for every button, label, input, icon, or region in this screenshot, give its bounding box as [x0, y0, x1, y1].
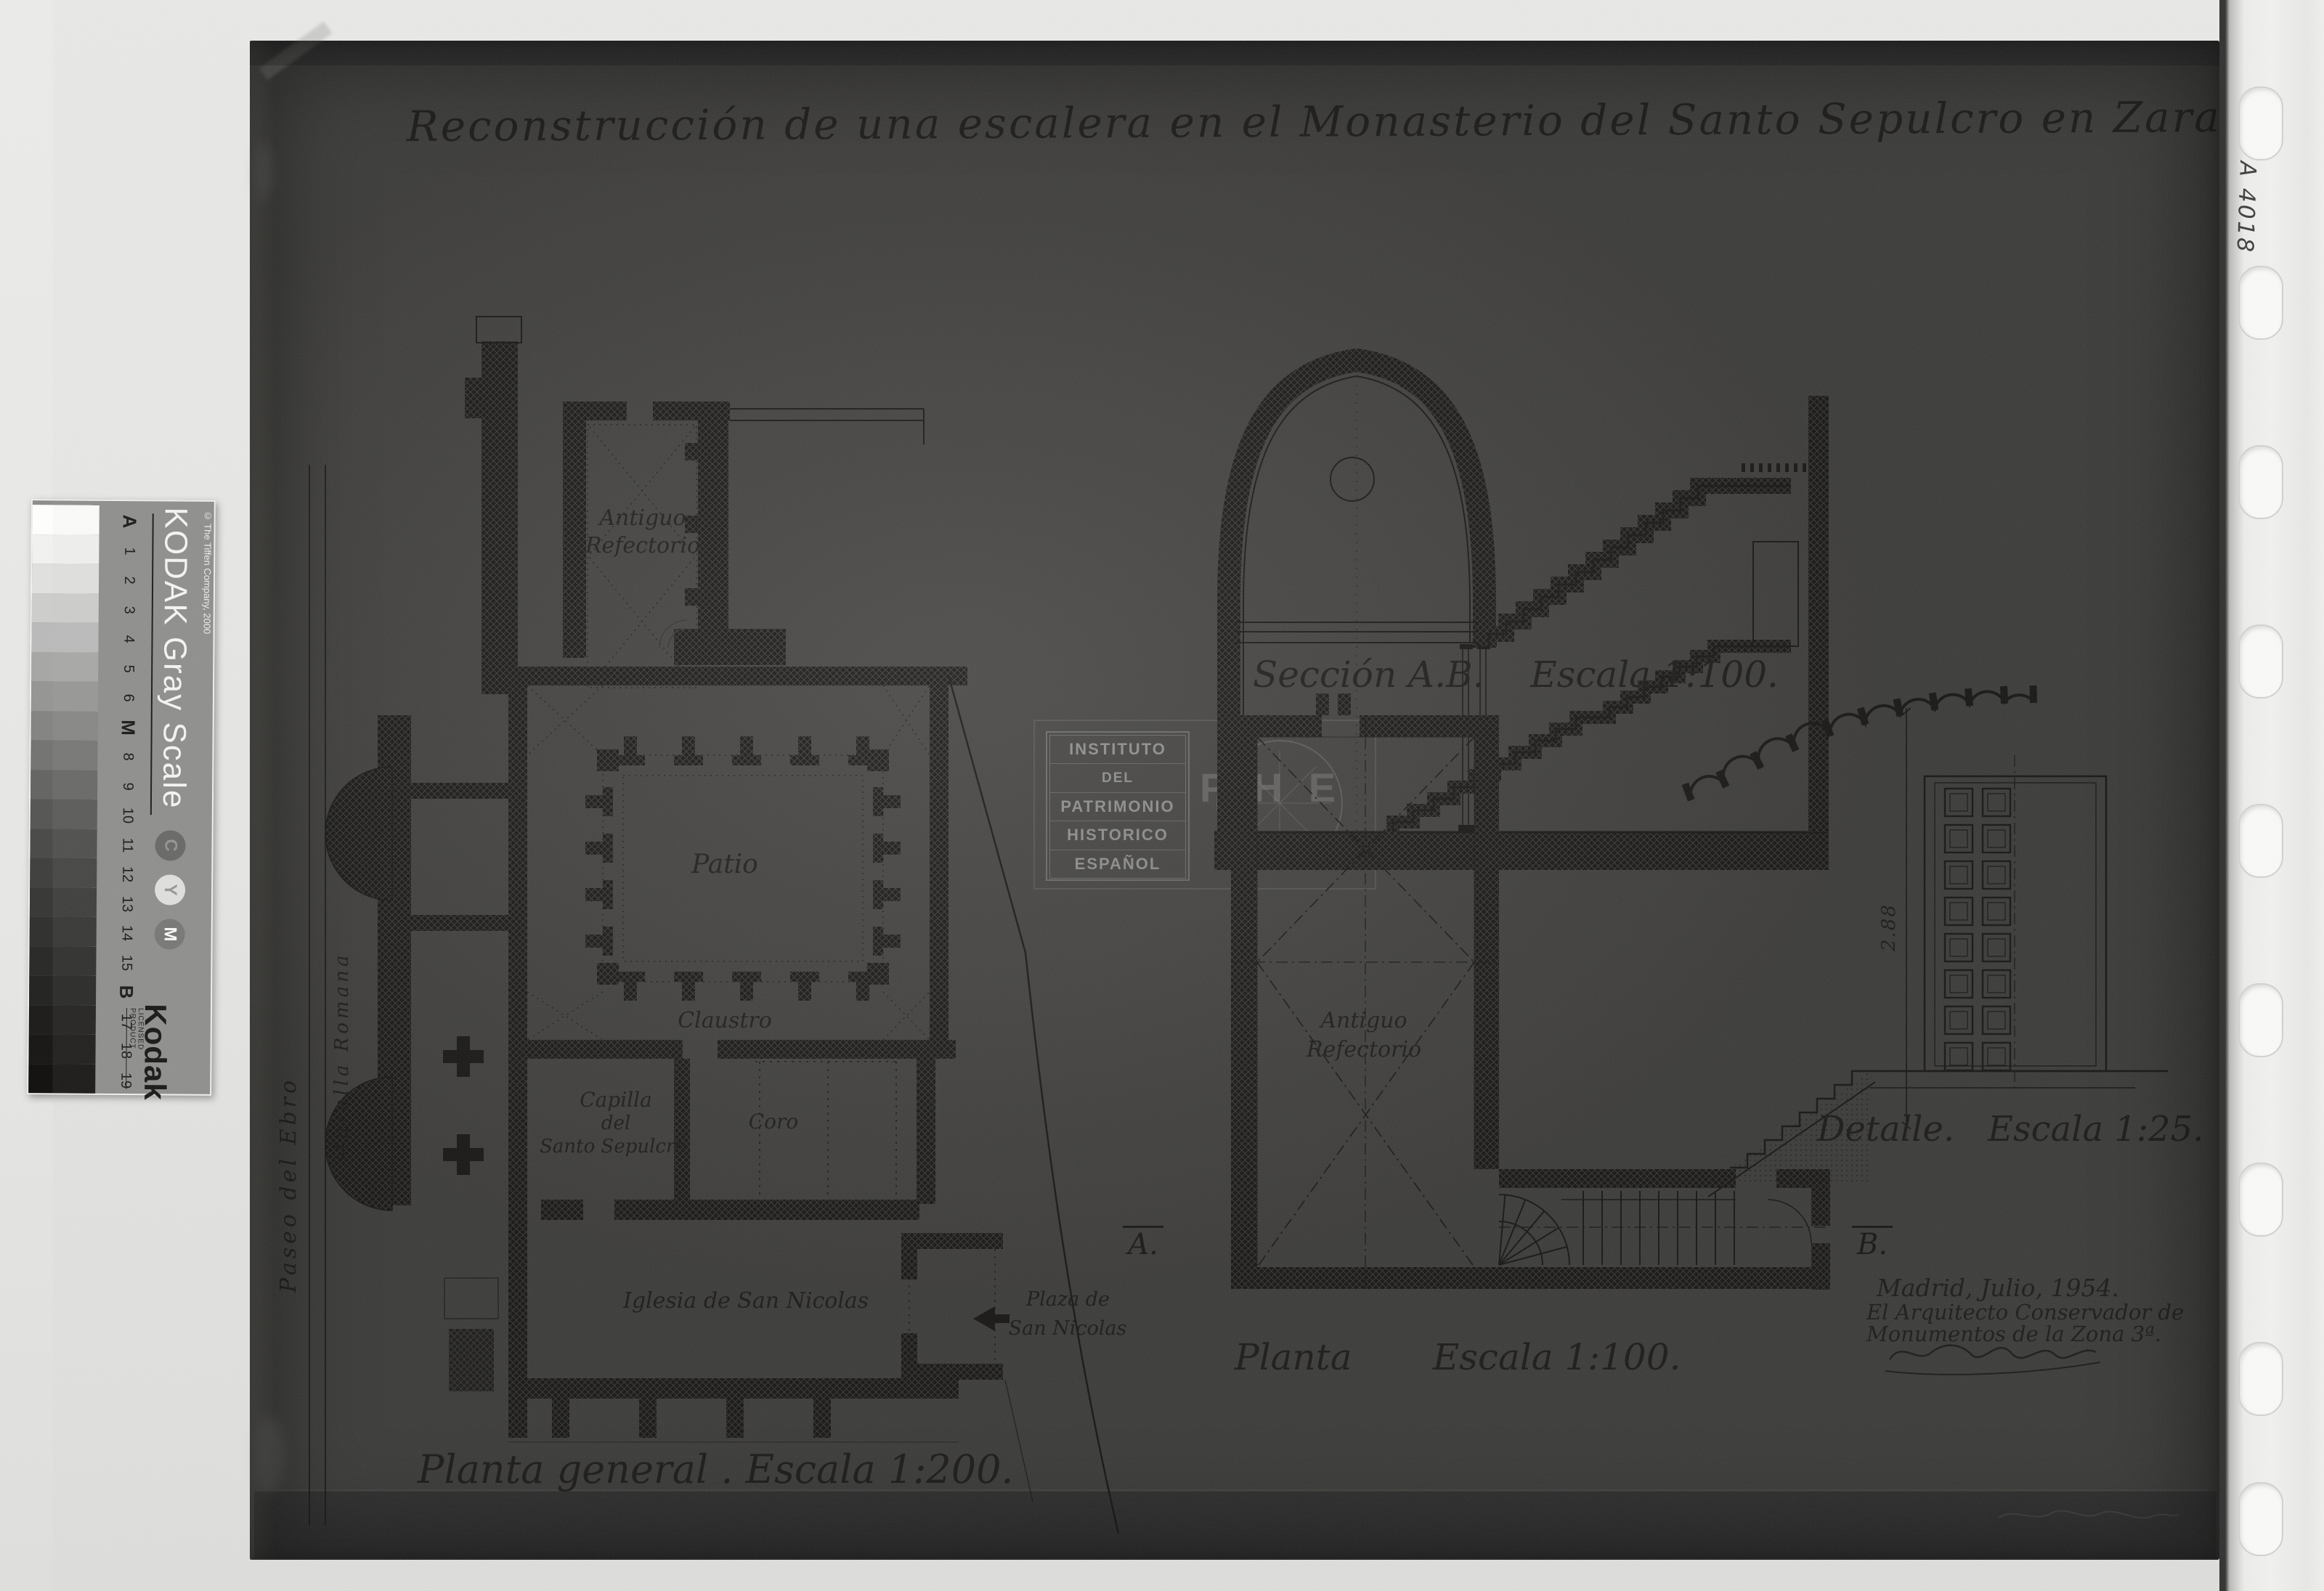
- gray-patch: [30, 829, 97, 858]
- gray-patch: [29, 946, 96, 976]
- gray-patch: [31, 799, 97, 829]
- sleeve-punch-hole: [2238, 804, 2283, 878]
- kodak-gray-scale-strip: A123456M89101112131415B171819 KODAK Gray…: [27, 499, 216, 1096]
- gray-patch: [30, 858, 97, 887]
- gray-step-label: 4: [114, 623, 143, 655]
- gray-step-label: B: [112, 976, 141, 1008]
- gray-patch: [32, 563, 99, 593]
- gray-step-label: A: [115, 505, 144, 537]
- gray-patch: [31, 681, 98, 711]
- gray-step-label: 15: [112, 946, 141, 978]
- gray-step-label: 1: [115, 534, 144, 566]
- magenta-patch-circle: M: [155, 919, 185, 949]
- gray-patch: [31, 652, 98, 682]
- gray-patch: [28, 1034, 95, 1064]
- gray-step-label: 5: [114, 652, 143, 684]
- gray-patch: [30, 887, 97, 917]
- gray-step-label: 8: [113, 741, 142, 773]
- gray-patch: [31, 740, 97, 770]
- gray-step-label: 3: [115, 593, 144, 625]
- gray-patch: [28, 1064, 95, 1094]
- gray-patch: [31, 711, 98, 741]
- gray-patch: [29, 1005, 96, 1035]
- photo-vignette: [250, 41, 2219, 1560]
- sleeve-punch-hole: [2238, 86, 2283, 160]
- cyan-patch-circle: C: [155, 830, 185, 860]
- gray-step-label: 10: [113, 799, 142, 831]
- gray-step-label: 13: [113, 887, 142, 919]
- yellow-patch-circle: Y: [155, 874, 185, 905]
- gray-scale-rule: [150, 513, 154, 815]
- kodak-gray-scale-title: KODAK Gray Scale: [155, 507, 194, 848]
- sleeve-punch-hole: [2238, 983, 2283, 1057]
- gray-patch: [31, 622, 98, 652]
- gray-step-label: 2: [115, 564, 144, 596]
- sleeve-punch-hole: [2238, 1342, 2283, 1416]
- sleeve-punch-hole: [2238, 624, 2283, 699]
- gray-patch: [31, 770, 97, 799]
- gray-scale-step-labels: A123456M89101112131415B171819: [33, 500, 214, 502]
- archival-photograph-page: PHE: [0, 0, 2324, 1591]
- gray-step-label: 12: [113, 858, 142, 890]
- gray-step-label: 6: [114, 682, 143, 714]
- sleeve-punch-hole: [2238, 1482, 2283, 1556]
- gray-step-label: 11: [113, 829, 142, 860]
- gray-step-label: M: [114, 711, 143, 743]
- gray-step-label: 14: [113, 917, 142, 949]
- gray-patch: [32, 593, 99, 623]
- kodak-licensed-product: LICENSED PRODUCT: [126, 1008, 145, 1089]
- gray-patch: [33, 505, 99, 534]
- gray-scale-patches: [28, 505, 99, 1094]
- gray-patch: [29, 975, 96, 1005]
- sleeve-punch-hole: [2238, 1163, 2283, 1237]
- gray-patch: [30, 916, 97, 946]
- kodak-copyright: © The Tiffen Company, 2000: [201, 510, 214, 699]
- sleeve-punch-hole: [2238, 445, 2283, 519]
- gray-step-label: 9: [113, 770, 142, 802]
- gray-patch: [32, 534, 99, 564]
- archive-number: A 4018: [2230, 160, 2261, 285]
